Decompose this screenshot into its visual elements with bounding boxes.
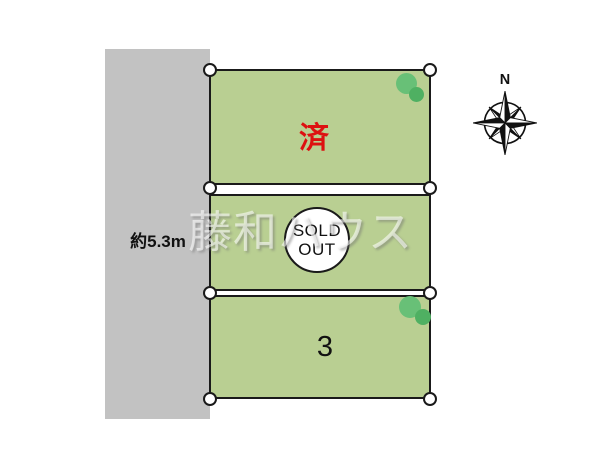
road-width-label: 約5.3m xyxy=(110,227,206,252)
sold-out-line2: OUT xyxy=(298,240,335,259)
tree-icon xyxy=(415,309,431,325)
compass-rose-icon: N xyxy=(467,72,543,158)
boundary-marker xyxy=(423,63,437,77)
boundary-marker xyxy=(203,392,217,406)
sold-out-badge: SOLD OUT xyxy=(284,207,350,273)
compass-north-label: N xyxy=(500,72,510,88)
boundary-marker xyxy=(423,181,437,195)
boundary-marker xyxy=(423,392,437,406)
plot-map-canvas: 約5.3m 済 SOLD OUT 3 藤和ハウス N xyxy=(0,0,600,450)
boundary-marker xyxy=(203,286,217,300)
parcel-1-sold-label: 済 xyxy=(284,113,344,157)
tree-icon xyxy=(409,87,424,102)
boundary-marker xyxy=(203,181,217,195)
boundary-marker xyxy=(203,63,217,77)
parcel-3-number-label: 3 xyxy=(295,331,355,364)
boundary-marker xyxy=(423,286,437,300)
sold-out-line1: SOLD xyxy=(293,221,341,240)
